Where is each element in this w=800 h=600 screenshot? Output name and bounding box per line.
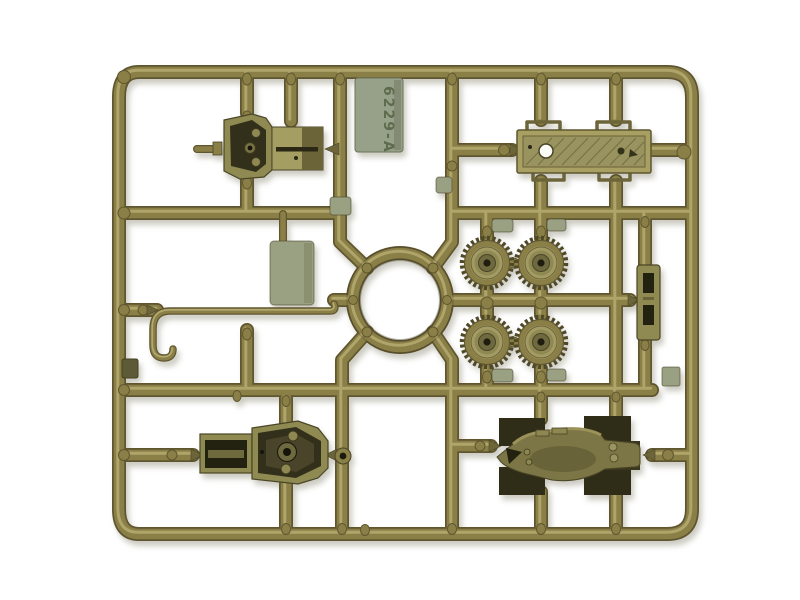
road-wheel xyxy=(462,317,512,367)
road-wheel xyxy=(516,238,566,288)
part-hull-top xyxy=(497,416,640,495)
part-label-tag: 6229-A xyxy=(355,78,403,154)
sprue: 6229-A xyxy=(118,70,693,535)
part-turret-base xyxy=(200,421,328,484)
part-turret-ring xyxy=(347,247,453,353)
part-eyelet xyxy=(335,448,351,464)
part-slotted-bracket xyxy=(637,265,660,340)
part-chassis-plate xyxy=(517,130,651,173)
mold-number-text: 6229-A xyxy=(380,86,396,154)
part-side-panel xyxy=(270,241,314,305)
road-wheel xyxy=(462,238,512,288)
road-wheel xyxy=(516,317,566,367)
plate-hole-large xyxy=(539,144,553,158)
part-gun-mount xyxy=(213,114,323,179)
sprue-photo: 6229-A xyxy=(0,0,800,600)
photo-stage: 6229-A xyxy=(0,0,800,600)
